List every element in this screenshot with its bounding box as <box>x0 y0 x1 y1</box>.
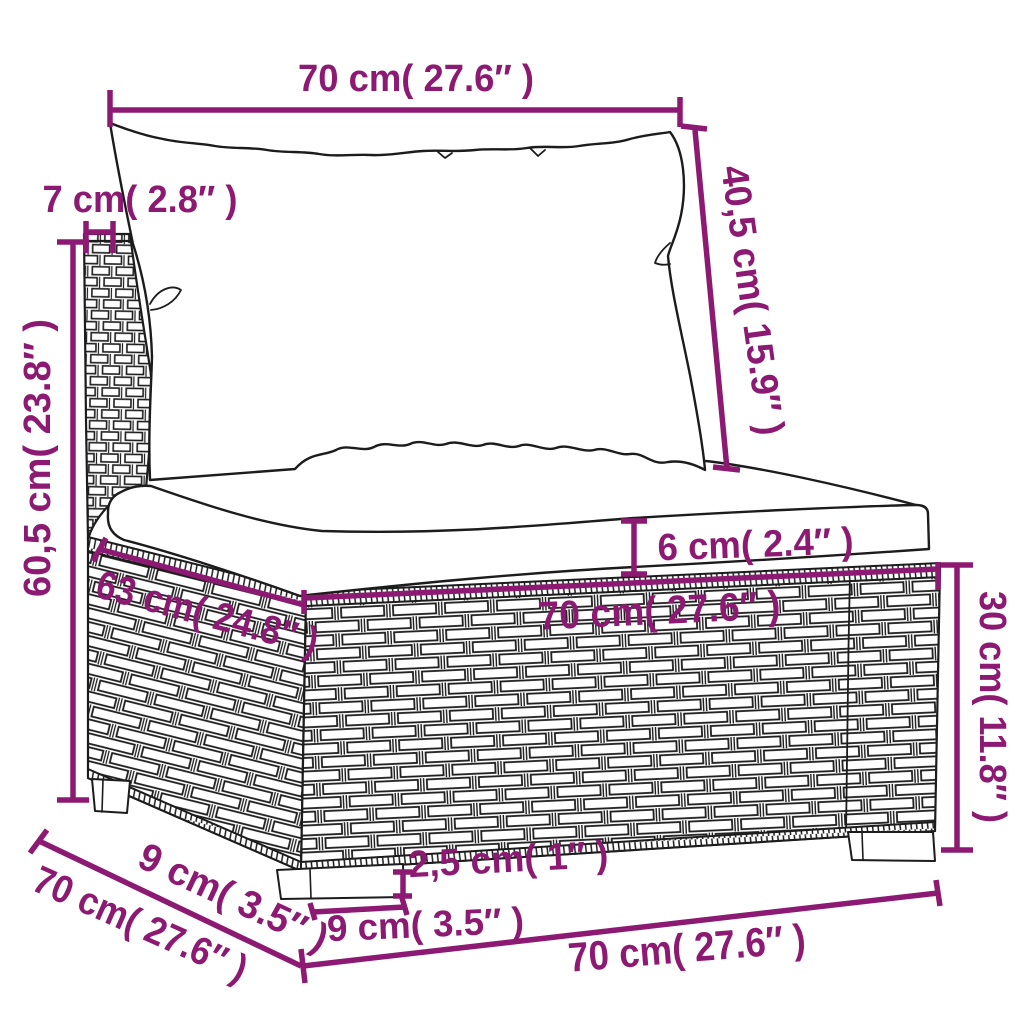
svg-text:30 cm( 11.8″ ): 30 cm( 11.8″ ) <box>971 591 1013 823</box>
svg-text:7 cm( 2.8″ ): 7 cm( 2.8″ ) <box>43 179 238 221</box>
svg-text:70 cm( 27.6″ ): 70 cm( 27.6″ ) <box>298 58 534 100</box>
svg-text:6 cm( 2.4″ ): 6 cm( 2.4″ ) <box>657 521 854 570</box>
svg-text:60,5 cm( 23.8″ ): 60,5 cm( 23.8″ ) <box>17 319 59 597</box>
svg-text:9 cm( 3.5″ ): 9 cm( 3.5″ ) <box>326 900 525 950</box>
